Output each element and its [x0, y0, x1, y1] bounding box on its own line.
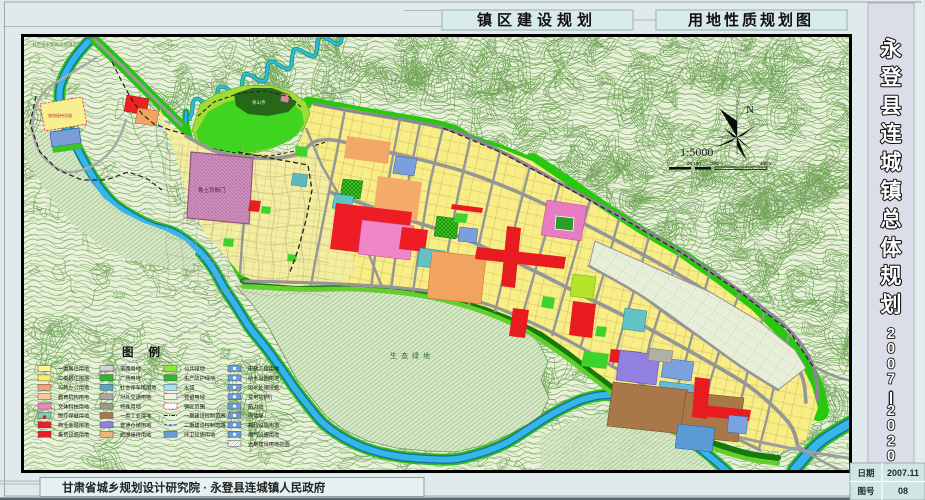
svg-text:永: 永 — [880, 38, 902, 61]
svg-text:预留用地: 预留用地 — [184, 393, 205, 401]
svg-text:体: 体 — [881, 237, 903, 260]
svg-text:特殊用地: 特殊用地 — [120, 402, 141, 410]
svg-text:50 100: 50 100 — [687, 161, 701, 166]
svg-text:日期: 日期 — [857, 468, 875, 478]
svg-text:1:5000: 1:5000 — [680, 145, 713, 159]
svg-text:鲁土司衙门: 鲁土司衙门 — [198, 186, 226, 194]
svg-text:燃气设施用地: 燃气设施用地 — [248, 431, 279, 439]
svg-text:0: 0 — [887, 356, 895, 372]
svg-text:200: 200 — [711, 161, 719, 166]
svg-text:图号: 图号 — [857, 486, 875, 496]
svg-text:水域: 水域 — [184, 384, 194, 392]
svg-text:广场用地: 广场用地 — [120, 374, 141, 382]
svg-text:2: 2 — [887, 326, 895, 342]
svg-text:甘肃省城乡规划设计研究院 · 永登县连城镇人民政府: 甘肃省城乡规划设计研究院 · 永登县连城镇人民政府 — [62, 481, 326, 495]
svg-text:2: 2 — [887, 403, 895, 419]
svg-text:热力站: 热力站 — [248, 402, 264, 410]
svg-text:生态绿地: 生态绿地 — [390, 351, 434, 360]
svg-text:0: 0 — [887, 418, 895, 434]
svg-text:对外交通用地: 对外交通用地 — [120, 393, 151, 401]
svg-text:2007.11: 2007.11 — [887, 468, 919, 478]
svg-text:二期建设控制范围: 二期建设控制范围 — [184, 421, 226, 429]
svg-text:二类居住用地: 二类居住用地 — [58, 374, 89, 382]
svg-text:一期建设控制范围: 一期建设控制范围 — [184, 412, 226, 420]
svg-text:0: 0 — [887, 341, 895, 357]
svg-text:公共绿地: 公共绿地 — [184, 365, 205, 373]
svg-text:镇区建设规划: 镇区建设规划 — [477, 11, 597, 29]
svg-text:用地性质规划图: 用地性质规划图 — [688, 11, 814, 29]
svg-text:7: 7 — [887, 372, 895, 388]
svg-text:给水设施用地: 给水设施用地 — [248, 374, 279, 382]
svg-text:远期建设用地范围: 远期建设用地范围 — [248, 440, 290, 448]
svg-text:城: 城 — [881, 151, 902, 175]
svg-text:镇: 镇 — [881, 180, 902, 203]
svg-text:变电站(所): 变电站(所) — [248, 393, 272, 401]
svg-text:N: N — [746, 104, 754, 116]
svg-text:社会停车场用地: 社会停车场用地 — [120, 384, 156, 392]
svg-text:一类居住用地: 一类居住用地 — [58, 365, 89, 373]
svg-text:商业金融用地: 商业金融用地 — [58, 421, 89, 429]
svg-text:普通仓储用地: 普通仓储用地 — [120, 421, 151, 429]
svg-text:0: 0 — [887, 449, 895, 465]
svg-text:医疗保健用地: 医疗保健用地 — [58, 412, 89, 420]
svg-text:登: 登 — [880, 65, 903, 89]
svg-text:电信局: 电信局 — [248, 412, 264, 420]
svg-text:污水处理设施: 污水处理设施 — [248, 384, 279, 392]
svg-text:集贸设施用地: 集贸设施用地 — [58, 431, 89, 439]
svg-text:文体科技用地: 文体科技用地 — [58, 402, 89, 410]
svg-text:市政工程用地: 市政工程用地 — [248, 365, 279, 373]
svg-text:青山寺: 青山寺 — [252, 99, 266, 106]
svg-text:08: 08 — [898, 486, 908, 496]
svg-text:图例: 图例 — [122, 345, 175, 359]
svg-text:镇区范围: 镇区范围 — [184, 402, 205, 410]
svg-text:行政办公用地: 行政办公用地 — [58, 384, 89, 392]
svg-text:教育机构用地: 教育机构用地 — [58, 393, 89, 401]
svg-text:县: 县 — [881, 95, 902, 118]
svg-text:总: 总 — [881, 207, 902, 231]
svg-text:400m: 400m — [760, 161, 772, 166]
svg-text:旅游接待设施: 旅游接待设施 — [48, 112, 72, 118]
svg-text:旅游接待用地: 旅游接待用地 — [120, 431, 151, 439]
svg-text:道路用地: 道路用地 — [120, 365, 141, 373]
svg-text:规: 规 — [881, 265, 902, 288]
svg-text:连: 连 — [881, 122, 903, 146]
svg-text:2: 2 — [887, 433, 895, 449]
svg-text:邮政设施用地: 邮政设施用地 — [248, 421, 279, 429]
svg-text:环卫设施用地: 环卫设施用地 — [184, 431, 215, 439]
svg-text:一类工业用地: 一类工业用地 — [120, 412, 151, 420]
svg-text:划: 划 — [881, 294, 902, 317]
svg-text:生产防护绿地: 生产防护绿地 — [184, 374, 215, 382]
